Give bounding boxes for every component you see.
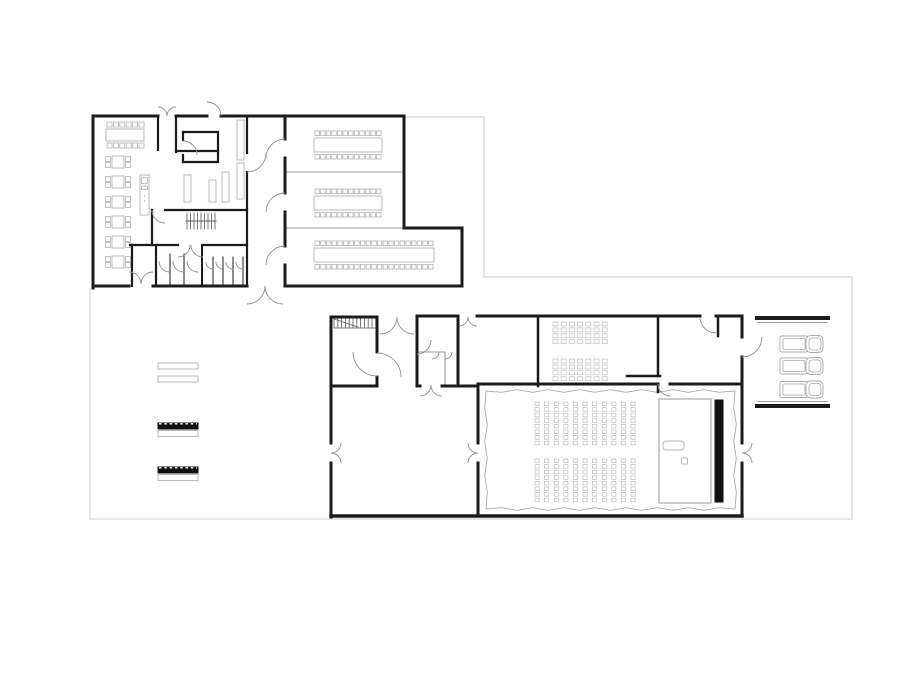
- seat: [583, 408, 587, 412]
- seat: [535, 424, 539, 428]
- dining-table: [112, 216, 124, 228]
- seat: [631, 487, 635, 491]
- seat: [535, 493, 539, 497]
- seat: [631, 481, 635, 485]
- desk: [586, 377, 591, 381]
- seat: [583, 493, 587, 497]
- seat: [612, 413, 616, 417]
- chair: [332, 189, 337, 194]
- seat: [564, 493, 568, 497]
- desk: [553, 322, 558, 326]
- chair: [106, 243, 111, 248]
- seat: [573, 493, 577, 497]
- seat: [545, 498, 549, 502]
- desk: [569, 377, 574, 381]
- chair: [337, 213, 342, 218]
- seat: [631, 493, 635, 497]
- stage-platform: [659, 399, 711, 503]
- seat: [612, 459, 616, 463]
- chair: [411, 265, 416, 270]
- seat: [545, 408, 549, 412]
- seat: [573, 470, 577, 474]
- door-swing-arc: [216, 262, 223, 269]
- seat: [573, 476, 577, 480]
- seat: [621, 430, 625, 434]
- auditorium-curtain: [485, 390, 737, 511]
- seat: [554, 470, 558, 474]
- seat: [621, 424, 625, 428]
- seat: [583, 465, 587, 469]
- seat: [593, 441, 597, 445]
- chair: [120, 122, 125, 127]
- chair: [349, 213, 354, 218]
- chair: [106, 203, 111, 208]
- door-swing-arc: [658, 384, 670, 396]
- terrace-benches: [158, 363, 198, 481]
- chair: [113, 122, 118, 127]
- desk: [578, 340, 583, 344]
- seat: [631, 424, 635, 428]
- door-swing-arc: [397, 317, 414, 334]
- shelf-unit: [237, 120, 244, 160]
- desk: [553, 340, 558, 344]
- desk: [602, 371, 607, 375]
- chair: [372, 241, 377, 246]
- chair: [343, 189, 348, 194]
- desk: [578, 371, 583, 375]
- seat: [593, 424, 597, 428]
- desk: [553, 328, 558, 332]
- seat: [535, 481, 539, 485]
- seat: [612, 487, 616, 491]
- seat: [602, 498, 606, 502]
- seat: [564, 470, 568, 474]
- seat: [602, 493, 606, 497]
- desk: [578, 322, 583, 326]
- seat: [593, 470, 597, 474]
- chair: [377, 265, 382, 270]
- seat: [583, 402, 587, 406]
- chair: [326, 131, 331, 136]
- auditorium-seats: [535, 402, 635, 502]
- chair: [360, 131, 365, 136]
- chair: [377, 155, 382, 160]
- seat: [573, 408, 577, 412]
- desk: [586, 328, 591, 332]
- door-swing-arc: [207, 102, 221, 116]
- seat: [545, 436, 549, 440]
- desk: [586, 365, 591, 369]
- door-swing-arc: [178, 245, 190, 257]
- chair: [332, 241, 337, 246]
- chair: [371, 131, 376, 136]
- door-swing-arc: [173, 261, 184, 272]
- chair: [315, 155, 320, 160]
- seat: [602, 408, 606, 412]
- seat: [621, 441, 625, 445]
- chair: [315, 131, 320, 136]
- seat: [593, 419, 597, 423]
- desk: [561, 334, 566, 338]
- shelf-unit: [184, 175, 191, 202]
- chair: [106, 257, 111, 262]
- chair: [126, 163, 131, 168]
- dining-table: [112, 236, 124, 248]
- seat: [621, 487, 625, 491]
- seat: [573, 419, 577, 423]
- chair: [326, 155, 331, 160]
- chair: [349, 131, 354, 136]
- seat: [593, 459, 597, 463]
- bench-base: [158, 431, 198, 437]
- chair: [337, 131, 342, 136]
- seat: [535, 487, 539, 491]
- desk: [578, 328, 583, 332]
- chair: [106, 217, 111, 222]
- chair: [126, 183, 131, 188]
- desk: [569, 365, 574, 369]
- desk: [594, 377, 599, 381]
- chair: [349, 189, 354, 194]
- bench-rail: [158, 363, 198, 369]
- seat: [545, 465, 549, 469]
- seat: [573, 441, 577, 445]
- desk: [561, 322, 566, 326]
- seat: [621, 481, 625, 485]
- seat: [564, 459, 568, 463]
- seat: [602, 441, 606, 445]
- seat: [602, 436, 606, 440]
- seat: [545, 470, 549, 474]
- chair: [394, 241, 399, 246]
- seat: [593, 498, 597, 502]
- seat: [573, 430, 577, 434]
- seat: [602, 430, 606, 434]
- bench-rail: [158, 376, 198, 382]
- door-swing-arc: [445, 352, 452, 359]
- seat: [564, 481, 568, 485]
- chair: [321, 265, 326, 270]
- seat: [554, 413, 558, 417]
- desk: [602, 365, 607, 369]
- seat: [583, 476, 587, 480]
- chair: [423, 265, 428, 270]
- seat: [564, 498, 568, 502]
- seat: [545, 493, 549, 497]
- seat: [602, 413, 606, 417]
- chair: [343, 155, 348, 160]
- seat: [564, 465, 568, 469]
- chair: [106, 177, 111, 182]
- chair: [377, 189, 382, 194]
- desk: [594, 359, 599, 363]
- chair: [349, 265, 354, 270]
- seat: [621, 436, 625, 440]
- conference-table: [314, 196, 382, 210]
- seat: [593, 476, 597, 480]
- seat: [535, 498, 539, 502]
- seat: [593, 430, 597, 434]
- floor-plan-page: [0, 0, 920, 690]
- shelf-unit: [237, 163, 244, 199]
- seat: [573, 402, 577, 406]
- chair: [377, 131, 382, 136]
- chair: [139, 122, 144, 127]
- seat: [602, 402, 606, 406]
- chair: [366, 265, 371, 270]
- seat: [631, 408, 635, 412]
- chair: [423, 241, 428, 246]
- shelf-unit: [209, 180, 216, 202]
- dining-table: [112, 156, 124, 168]
- seat: [583, 470, 587, 474]
- door-swing-arc: [129, 272, 141, 284]
- seat: [621, 419, 625, 423]
- floor-plan-figure: [0, 0, 920, 690]
- desk: [569, 328, 574, 332]
- door-swing-arc: [459, 317, 468, 326]
- desk: [569, 322, 574, 326]
- seat: [621, 470, 625, 474]
- seat: [631, 419, 635, 423]
- seat: [612, 430, 616, 434]
- seat: [602, 470, 606, 474]
- chair: [394, 265, 399, 270]
- seat: [564, 487, 568, 491]
- chair: [365, 213, 370, 218]
- chair: [106, 237, 111, 242]
- chair: [355, 241, 360, 246]
- seat: [612, 465, 616, 469]
- seat: [554, 408, 558, 412]
- seat: [545, 402, 549, 406]
- chair: [389, 265, 394, 270]
- seat: [573, 424, 577, 428]
- desk: [586, 371, 591, 375]
- chair: [326, 213, 331, 218]
- door-swing-arc: [266, 246, 285, 265]
- chair: [411, 241, 416, 246]
- door-swing-arc: [380, 317, 397, 334]
- seat: [602, 465, 606, 469]
- seat: [564, 408, 568, 412]
- chair: [337, 155, 342, 160]
- chair: [343, 265, 348, 270]
- seat: [631, 436, 635, 440]
- door-swing-arc: [265, 286, 283, 304]
- seat: [612, 441, 616, 445]
- desk: [569, 371, 574, 375]
- desk: [578, 365, 583, 369]
- seat: [535, 441, 539, 445]
- shelf-unit: [222, 172, 229, 202]
- desk: [553, 359, 558, 363]
- chair: [400, 241, 405, 246]
- chair: [321, 241, 326, 246]
- chair: [332, 155, 337, 160]
- desk: [569, 340, 574, 344]
- seminar-tables: [314, 131, 434, 269]
- chair: [338, 265, 343, 270]
- desk: [578, 377, 583, 381]
- conference-table: [314, 248, 434, 262]
- seat: [535, 402, 539, 406]
- seat: [535, 470, 539, 474]
- seat: [612, 408, 616, 412]
- chair: [337, 189, 342, 194]
- seat: [631, 430, 635, 434]
- desk: [602, 334, 607, 338]
- door-swing-arc: [247, 286, 265, 304]
- seat: [535, 413, 539, 417]
- seat: [573, 459, 577, 463]
- seat: [621, 402, 625, 406]
- desk: [569, 334, 574, 338]
- chair: [365, 189, 370, 194]
- chair: [332, 131, 337, 136]
- chair: [126, 257, 131, 262]
- chair: [371, 189, 376, 194]
- seat: [564, 441, 568, 445]
- chair: [377, 213, 382, 218]
- chair: [343, 131, 348, 136]
- chair: [126, 203, 131, 208]
- door-swing-arc: [742, 337, 762, 357]
- seat: [621, 476, 625, 480]
- seat: [612, 481, 616, 485]
- doors: [129, 102, 762, 463]
- seat: [612, 436, 616, 440]
- parked-cars: [780, 336, 823, 399]
- seat: [554, 419, 558, 423]
- seat: [621, 465, 625, 469]
- chair: [315, 213, 320, 218]
- chair: [354, 155, 359, 160]
- seat: [545, 424, 549, 428]
- desk: [569, 359, 574, 363]
- door-swing-arc: [266, 139, 285, 158]
- seat: [602, 487, 606, 491]
- podium: [663, 441, 684, 450]
- chair: [371, 155, 376, 160]
- seat: [583, 459, 587, 463]
- seat: [593, 413, 597, 417]
- door-swing-arc: [377, 353, 401, 377]
- seat: [621, 413, 625, 417]
- desk: [602, 322, 607, 326]
- desk: [561, 340, 566, 344]
- chair: [315, 265, 320, 270]
- dining-table: [112, 196, 124, 208]
- chair: [355, 265, 360, 270]
- chair: [113, 143, 118, 148]
- seat: [545, 430, 549, 434]
- door-swing-arc: [236, 262, 243, 269]
- projection-screen: [715, 400, 723, 502]
- seat: [554, 487, 558, 491]
- desk: [594, 322, 599, 326]
- chair: [315, 189, 320, 194]
- chair: [406, 241, 411, 246]
- chair: [417, 241, 422, 246]
- chair: [389, 241, 394, 246]
- chair: [383, 265, 388, 270]
- desk: [561, 377, 566, 381]
- seat: [545, 413, 549, 417]
- door-swing-arc: [468, 317, 477, 326]
- desk: [578, 334, 583, 338]
- desk: [586, 334, 591, 338]
- seat: [583, 413, 587, 417]
- chair: [126, 143, 131, 148]
- chair: [321, 131, 326, 136]
- seat: [545, 487, 549, 491]
- seat: [573, 436, 577, 440]
- seat: [535, 465, 539, 469]
- seat: [583, 441, 587, 445]
- seat: [621, 493, 625, 497]
- seat: [612, 419, 616, 423]
- desk: [561, 359, 566, 363]
- desk: [602, 359, 607, 363]
- seat: [554, 465, 558, 469]
- chair: [349, 155, 354, 160]
- chair: [349, 241, 354, 246]
- seat: [554, 493, 558, 497]
- seat: [573, 487, 577, 491]
- seat: [535, 459, 539, 463]
- chair: [406, 265, 411, 270]
- chair: [429, 241, 434, 246]
- desk: [561, 365, 566, 369]
- door-swing-arc: [159, 261, 170, 272]
- seat: [583, 430, 587, 434]
- site-outline: [90, 117, 852, 519]
- curtain-line: [485, 390, 737, 511]
- seat: [564, 413, 568, 417]
- chair: [126, 197, 131, 202]
- chair: [400, 265, 405, 270]
- seat: [631, 498, 635, 502]
- seat: [631, 459, 635, 463]
- chair: [106, 163, 111, 168]
- seat: [602, 476, 606, 480]
- seat: [593, 481, 597, 485]
- chair: [126, 263, 131, 268]
- seat: [631, 465, 635, 469]
- chair: [133, 122, 138, 127]
- seat: [545, 476, 549, 480]
- chair: [321, 189, 326, 194]
- seat: [621, 459, 625, 463]
- chair: [106, 157, 111, 162]
- seat: [554, 481, 558, 485]
- classroom-desks: [553, 322, 607, 381]
- desk: [602, 377, 607, 381]
- seat: [583, 498, 587, 502]
- chair: [126, 157, 131, 162]
- desk: [553, 365, 558, 369]
- chair: [107, 143, 112, 148]
- chair: [126, 177, 131, 182]
- chair: [133, 143, 138, 148]
- chair: [360, 241, 365, 246]
- stage-box: [682, 458, 688, 464]
- desk: [578, 359, 583, 363]
- seat: [583, 436, 587, 440]
- chair: [354, 131, 359, 136]
- chair: [371, 213, 376, 218]
